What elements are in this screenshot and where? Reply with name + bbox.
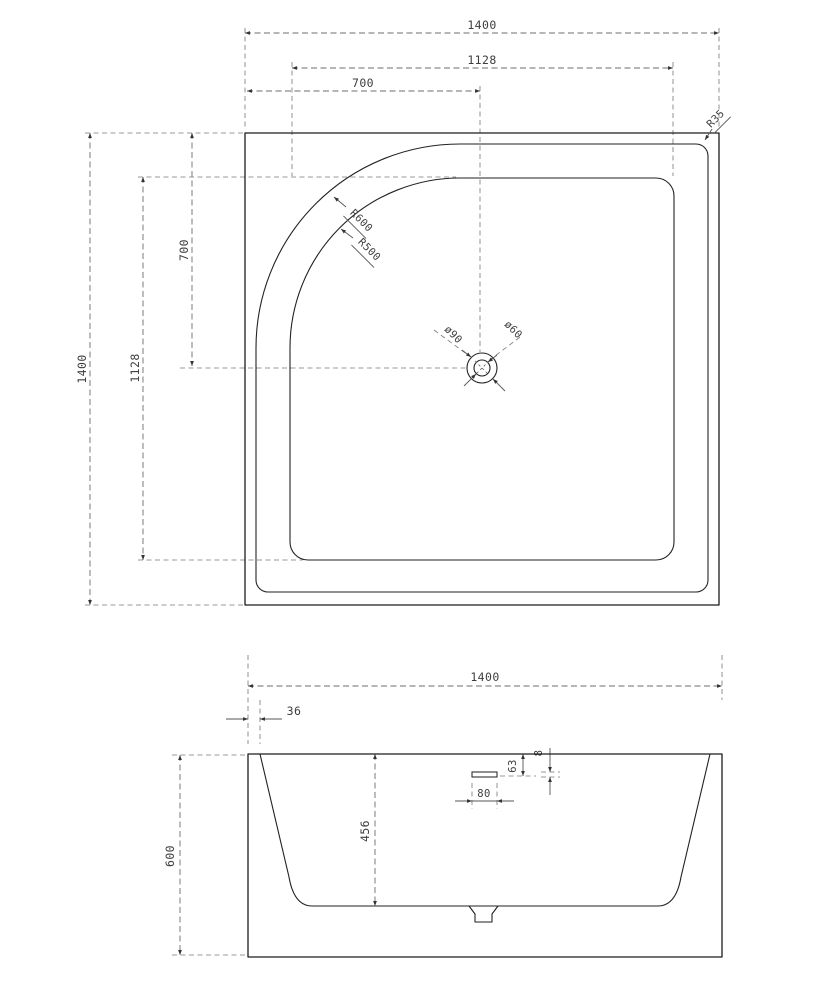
- technical-drawing: 1400 1128 700 1400 1128 700: [0, 0, 840, 1000]
- leader-arrow: [341, 229, 353, 238]
- dim-left-height-overall: 1400: [75, 133, 90, 605]
- dim-front-rim-inset: 36: [226, 704, 301, 719]
- leader-arrow: [334, 197, 346, 207]
- dim-front-basin-depth: 456: [358, 754, 375, 906]
- dim-front-width-overall: 1400: [248, 670, 722, 686]
- dim-front-overflow-width: 80: [455, 788, 514, 801]
- tray-section-outlines: [248, 754, 722, 957]
- dim-label: 63: [507, 759, 519, 772]
- dim-label: 80: [477, 788, 490, 800]
- dim-label: 1128: [467, 53, 496, 67]
- dim-label: R35: [705, 108, 728, 131]
- dim-top-width-inner: 1128: [292, 53, 673, 68]
- dim-top-width-overall: 1400: [245, 18, 719, 33]
- dim-label: 8: [533, 750, 545, 757]
- dim-label: 36: [287, 704, 302, 718]
- tray-apron-outline: [248, 754, 722, 957]
- callout-corner-radius-r35: R35: [705, 108, 731, 140]
- drain-boss: [469, 906, 498, 922]
- dim-label: R500: [355, 236, 382, 263]
- dim-label: 456: [358, 820, 372, 842]
- overflow-slot: [472, 772, 497, 777]
- dim-label: 1400: [467, 18, 496, 32]
- tray-rim-inner-edge: [290, 178, 674, 560]
- dim-front-height-overall: 600: [163, 755, 180, 955]
- top-view-extension-lines: [85, 28, 719, 605]
- dim-label: ø60: [502, 319, 525, 342]
- tray-rim-outer-edge: [256, 144, 708, 592]
- dim-label: 700: [352, 76, 374, 90]
- dim-label: R600: [347, 207, 374, 234]
- dim-left-height-inner: 1128: [128, 177, 143, 560]
- drawing-canvas: 1400 1128 700 1400 1128 700: [0, 0, 840, 1000]
- dim-label: 1128: [128, 353, 142, 382]
- dim-label: ø90: [442, 324, 465, 347]
- dim-front-overflow-height: 8: [533, 748, 550, 795]
- front-view: 1400 36 600 456 63 8: [163, 655, 722, 957]
- dim-label: 600: [163, 845, 177, 867]
- leader-arrow: [462, 350, 471, 357]
- leader-arrow: [464, 374, 476, 386]
- dim-left-height-to-drain: 700: [177, 133, 192, 366]
- dim-label: 1400: [470, 670, 499, 684]
- top-view: 1400 1128 700 1400 1128 700: [75, 18, 731, 605]
- dim-label: 700: [177, 239, 191, 261]
- dim-top-width-to-drain: 700: [247, 76, 480, 91]
- front-view-extension-lines: [172, 655, 722, 955]
- leader-arrow: [705, 129, 712, 140]
- tray-plan-outlines: [245, 133, 719, 605]
- leader-arrow: [493, 379, 505, 391]
- dim-label: 1400: [75, 354, 89, 383]
- callout-arc-radius-r600: R600: [334, 197, 375, 239]
- dim-front-overflow-offset: 63: [507, 754, 523, 776]
